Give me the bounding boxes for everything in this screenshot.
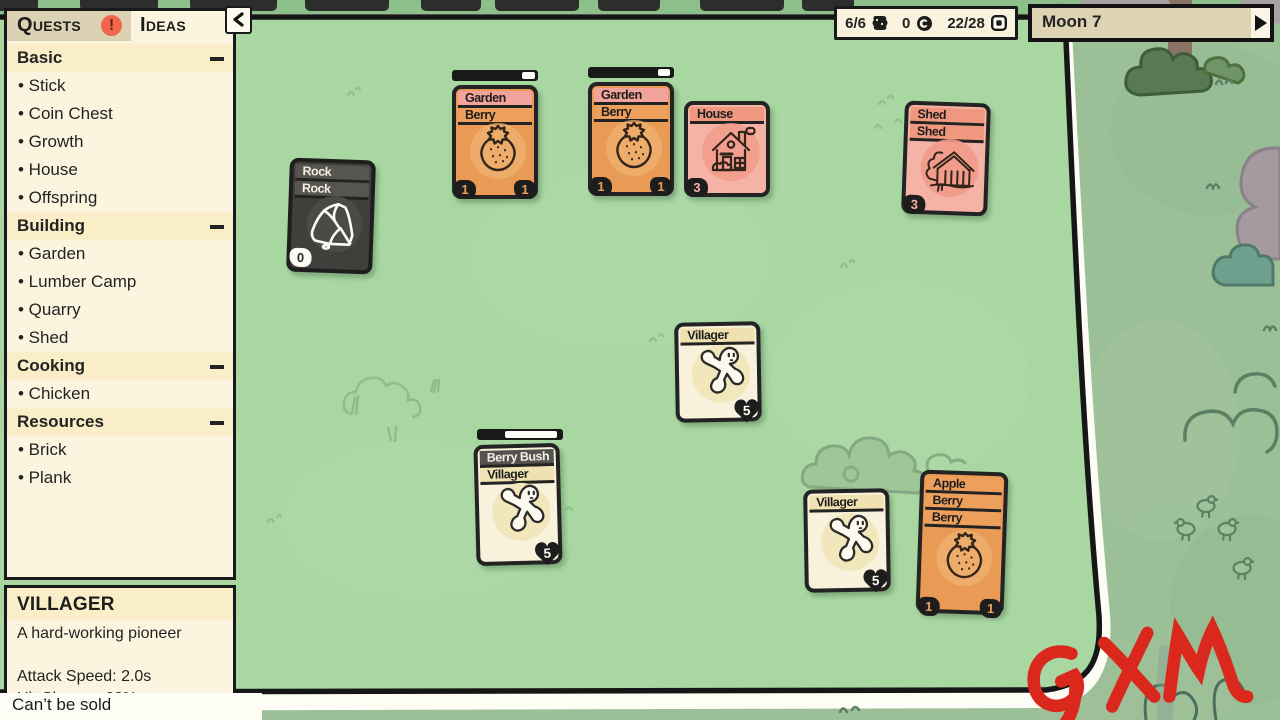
svg-text:5: 5 [543,546,551,561]
svg-text:5: 5 [743,403,751,418]
svg-text:5: 5 [872,573,880,588]
